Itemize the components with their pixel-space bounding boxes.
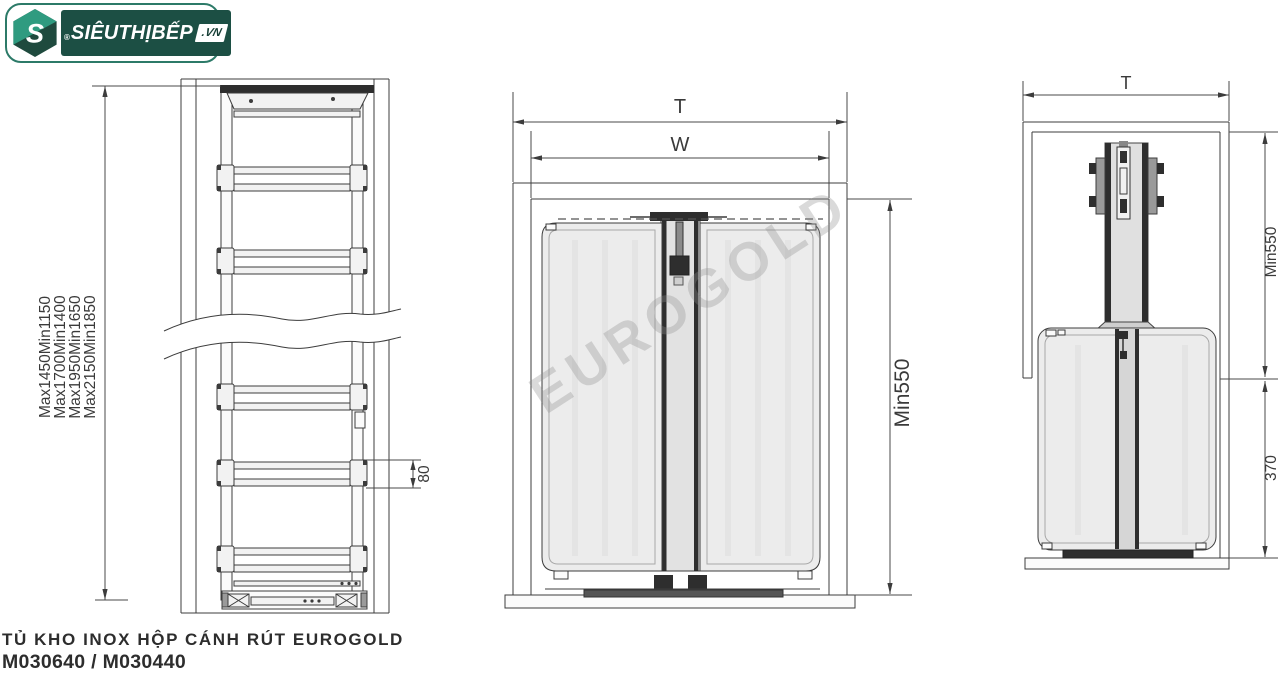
rail-gap-dimension: 80	[366, 460, 433, 488]
basket-zone-dimension: 370	[1229, 381, 1280, 558]
depth-label: T	[1121, 73, 1132, 93]
cabinet-width-dimension: W	[531, 131, 829, 198]
depth-dimension: T	[1023, 73, 1229, 121]
logo-plate: ® SIÊUTHỊBẾP .VN	[61, 10, 231, 56]
diagram-canvas: Max1450Min1150 Max1700Min1400 Max1950Min…	[0, 0, 1280, 679]
pullout-mast	[1089, 141, 1164, 330]
rail-gap-label: 80	[416, 465, 433, 483]
shelf-rail	[217, 248, 367, 274]
logo-monogram: S	[26, 18, 44, 49]
base-hardware	[545, 571, 820, 597]
product-title: TỦ KHO INOX HỘP CÁNH RÚT EUROGOLD	[2, 630, 404, 650]
height-option-label: Max2150Min1850	[82, 295, 99, 419]
min-height-label: Min550	[891, 359, 914, 428]
product-codes: M030640 / M030440	[2, 651, 404, 674]
shelf-rail	[217, 546, 367, 572]
sieuthibep-logo: S ® SIÊUTHỊBẾP .VN	[5, 3, 220, 63]
product-title-block: TỦ KHO INOX HỘP CÁNH RÚT EUROGOLD M03064…	[2, 630, 404, 674]
shelf-rail	[217, 384, 367, 410]
logo-hexagon-icon: S	[11, 7, 59, 59]
top-shelf-panel	[227, 93, 368, 109]
brand-domain-badge: .VN	[195, 24, 229, 42]
min-height-dimension: Min550	[847, 199, 914, 595]
registered-mark: ®	[64, 33, 70, 42]
basket-zone-label: 370	[1263, 455, 1280, 481]
top-mount-bar	[220, 85, 374, 93]
total-width-label: T	[674, 96, 686, 118]
min-height-label-side: Min550	[1263, 226, 1280, 277]
shelf-rail	[217, 460, 367, 486]
brand-name: SIÊUTHỊBẾP	[71, 22, 193, 45]
basket-side-view	[1038, 328, 1216, 558]
bottom-slide-assembly	[222, 581, 367, 609]
pantry-front-view-diagram: Max1450Min1150 Max1700Min1400 Max1950Min…	[37, 79, 433, 613]
break-lines	[164, 309, 401, 359]
cabinet-base	[1025, 558, 1229, 569]
cabinet-side-view-diagram: T	[1023, 73, 1280, 569]
cabinet-width-label: W	[671, 134, 690, 156]
shelf-rail	[217, 165, 367, 191]
page: Max1450Min1150 Max1700Min1400 Max1950Min…	[0, 0, 1280, 679]
